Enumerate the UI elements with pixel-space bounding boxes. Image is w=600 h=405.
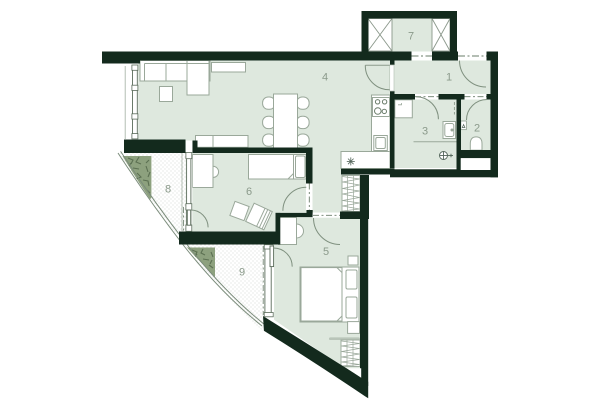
svg-text:7: 7 — [408, 31, 414, 43]
svg-text:1: 1 — [446, 72, 452, 84]
svg-text:5: 5 — [323, 246, 329, 258]
svg-text:8: 8 — [165, 184, 171, 196]
svg-text:2: 2 — [474, 123, 480, 135]
svg-text:9: 9 — [239, 267, 245, 279]
svg-text:3: 3 — [422, 126, 428, 138]
svg-text:6: 6 — [246, 186, 252, 198]
svg-text:4: 4 — [322, 72, 328, 84]
